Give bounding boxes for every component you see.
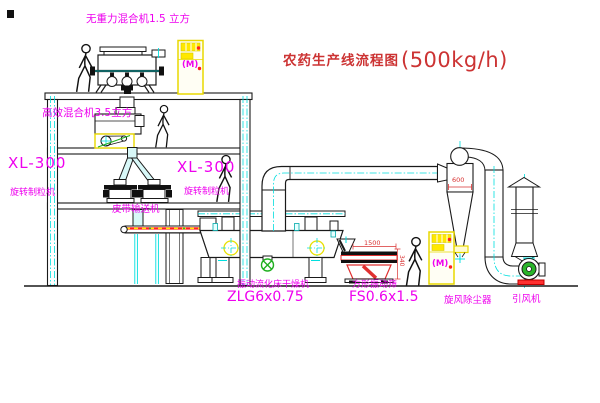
person-figure [156,105,169,147]
label-belt-conveyor: 皮带输送机 [112,205,160,215]
granulator-left [103,180,138,203]
exhaust-duct [262,164,447,231]
title-capacity: (500kg/h) [401,48,508,72]
label-granulator-right-name: 旋转制粒机 [184,188,229,197]
label-granulator-right-model: XL-300 [177,160,235,175]
label-sieve-model: FS0.6x1.5 [349,290,419,304]
label-granulator-left-name: 旋转制粒机 [10,189,55,198]
dim-cyclone-diameter: 600 [452,177,464,184]
building-column-right [240,96,250,286]
indicator-dot [448,238,451,241]
control-cabinet-right [429,232,454,284]
indicator-dot [449,265,452,268]
belt-conveyor [121,210,203,285]
dim-sieve-height: 340 [398,255,404,266]
person-figure [77,45,92,92]
title-text: 农药生产线流程图 [283,49,399,72]
granulator-right [137,180,172,203]
label-second-mixer: 高效混合机3.5立方 [42,108,132,119]
label-fan: 引风机 [512,295,541,305]
induced-draft-fan [518,258,545,285]
cabinet-top-motor-symbol: (M) [182,61,198,70]
indicator-dot [197,46,200,49]
label-cyclone: 旋风除尘器 [444,296,492,306]
cabinet-right-motor-symbol: (M) [432,260,448,269]
fan-base [518,280,544,285]
person-figure [406,238,421,286]
label-granulator-left-model: XL-300 [8,156,66,171]
indicator-dot [198,67,201,70]
label-gravity-mixer: 无重力混合机1.5 立方 [86,14,190,25]
label-dryer-model: ZLG6x0.75 [227,290,304,304]
rotary-valve [262,256,274,271]
corner-mark [7,10,14,18]
gravity-free-mixer [90,47,165,94]
flow-diagram-canvas: 农药生产线流程图 (500kg/h) 无重力混合机1.5 立方 高效混合机3.5… [0,0,600,403]
diagram-title: 农药生产线流程图 (500kg/h) [283,48,508,72]
dim-sieve-length: 1500 [364,240,381,247]
